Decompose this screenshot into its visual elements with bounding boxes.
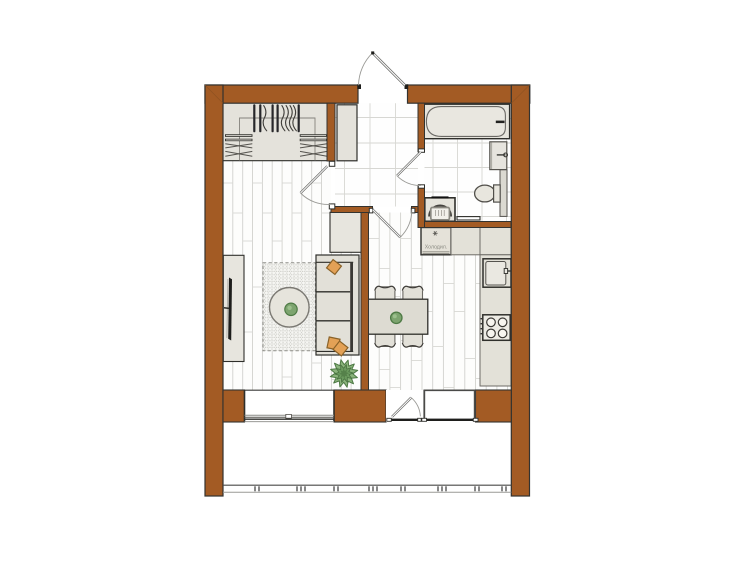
- svg-text:Холодил.: Холодил.: [425, 245, 447, 251]
